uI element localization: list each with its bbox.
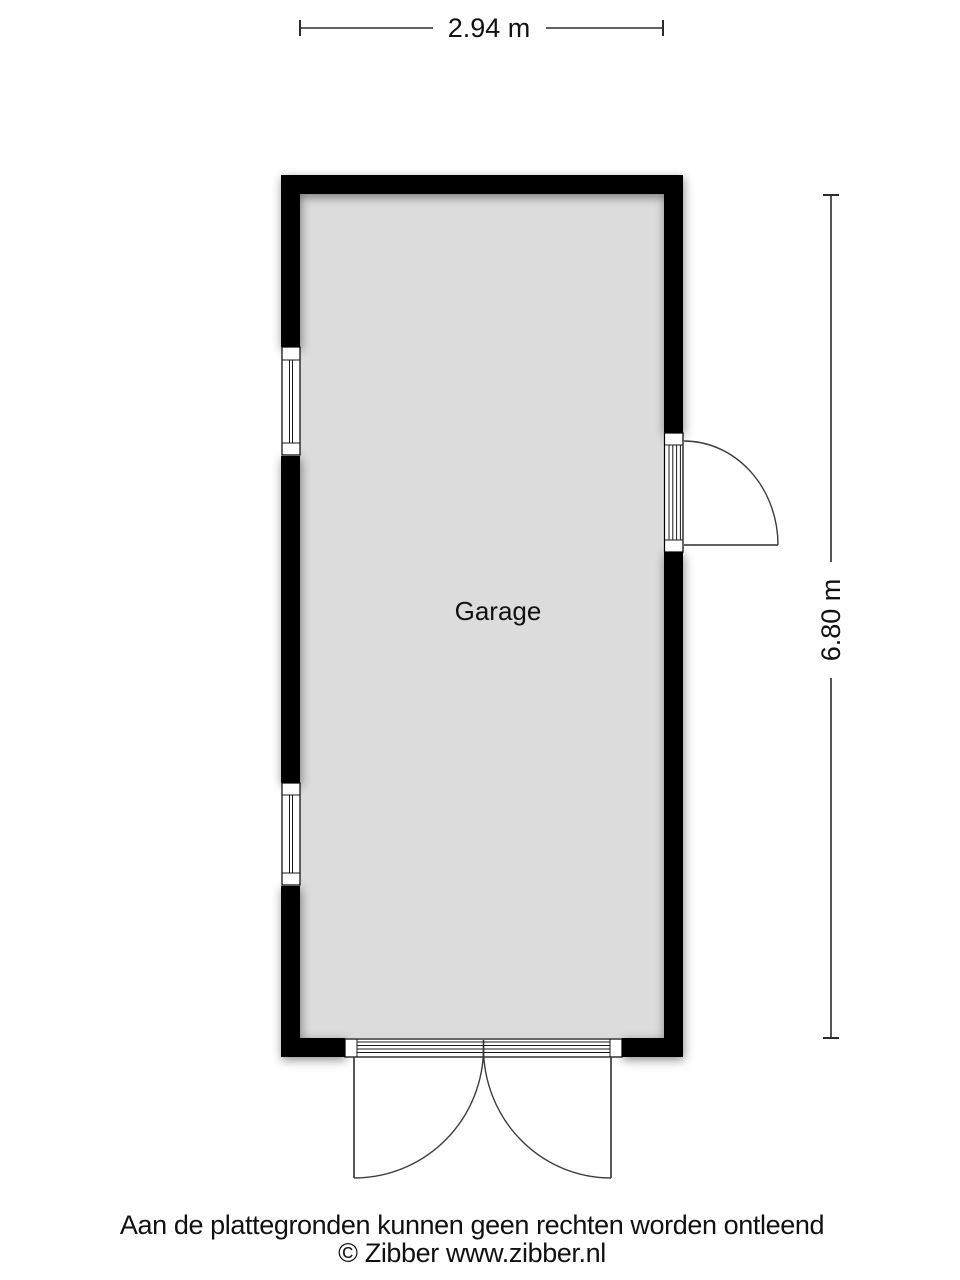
window-upper-frame (282, 347, 300, 455)
footer: Aan de plattegronden kunnen geen rechten… (0, 1211, 944, 1267)
wall-left-middle (281, 456, 300, 783)
footer-copyright: © Zibber www.zibber.nl (0, 1239, 944, 1267)
wall-bottom-right (622, 1038, 683, 1057)
room-label: Garage (455, 596, 542, 626)
garage-door-bottom (345, 1039, 622, 1178)
wall-right-lower (664, 552, 683, 1057)
dimension-top: 2.94 m (300, 13, 663, 43)
window-upper (282, 347, 300, 455)
wall-left-lower (281, 886, 300, 1057)
window-lower-frame (282, 783, 300, 885)
dimension-right-label: 6.80 m (816, 579, 846, 662)
garage-door-left-swing-arc (354, 1048, 484, 1178)
footer-disclaimer: Aan de plattegronden kunnen geen rechten… (0, 1211, 944, 1239)
wall-bottom-left (281, 1038, 345, 1057)
wall-left-upper (281, 175, 300, 347)
wall-right-upper (664, 175, 683, 433)
dimension-top-label: 2.94 m (448, 13, 531, 43)
wall-top (281, 175, 683, 194)
garage-door-right-swing-arc (484, 1048, 612, 1178)
dimension-right: 6.80 m (816, 195, 846, 1038)
window-lower (282, 783, 300, 885)
door-right (665, 433, 779, 552)
door-right-swing-arc (684, 441, 778, 545)
floor-plan-page: Garage 2.94 m 6.80 m Aan de plattegronde… (0, 0, 960, 1280)
floor-plan-drawing: Garage 2.94 m 6.80 m (0, 0, 960, 1280)
